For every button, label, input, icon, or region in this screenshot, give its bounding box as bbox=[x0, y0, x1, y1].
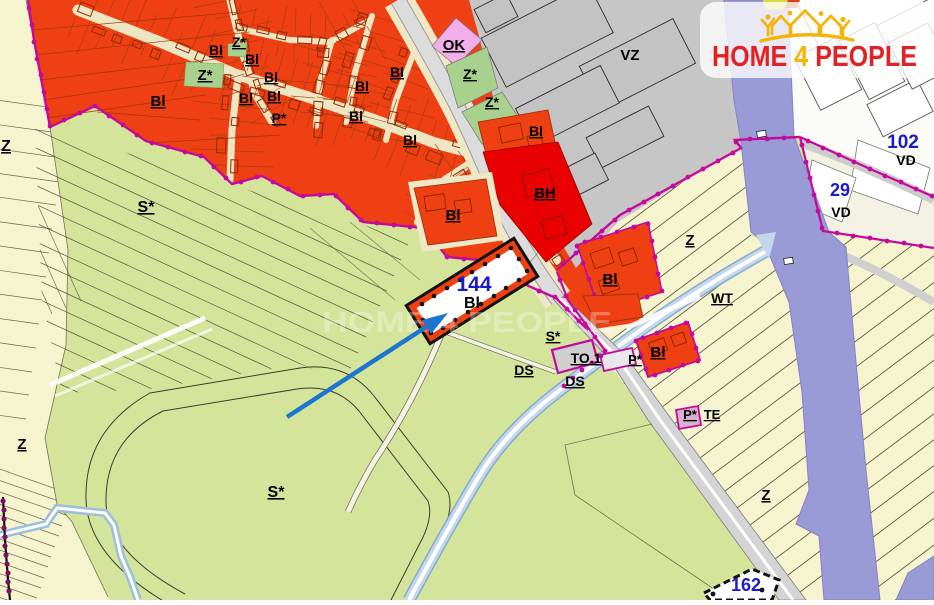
svg-text:Bl: Bl bbox=[355, 78, 369, 94]
svg-text:HOME 4 PEOPLE: HOME 4 PEOPLE bbox=[712, 41, 917, 73]
svg-text:Bl: Bl bbox=[349, 108, 363, 124]
svg-text:Bl: Bl bbox=[267, 88, 281, 104]
svg-text:Bl: Bl bbox=[151, 93, 166, 110]
svg-text:29: 29 bbox=[830, 180, 850, 200]
svg-text:DS: DS bbox=[565, 373, 584, 389]
svg-text:TE: TE bbox=[704, 407, 721, 422]
svg-text:P*: P* bbox=[272, 110, 287, 126]
svg-text:WT: WT bbox=[711, 290, 733, 306]
svg-text:162: 162 bbox=[731, 575, 761, 595]
svg-text:Bl: Bl bbox=[239, 90, 253, 106]
svg-text:Bl: Bl bbox=[529, 123, 543, 139]
svg-text:VD: VD bbox=[831, 204, 850, 220]
svg-text:Z: Z bbox=[685, 232, 694, 249]
svg-text:Bl: Bl bbox=[209, 42, 223, 58]
svg-text:144: 144 bbox=[456, 273, 491, 296]
svg-text:P*: P* bbox=[628, 352, 643, 367]
svg-text:BH: BH bbox=[534, 185, 556, 202]
svg-text:Bl: Bl bbox=[651, 344, 666, 361]
svg-text:Bl: Bl bbox=[446, 207, 461, 224]
svg-text:Bl: Bl bbox=[245, 51, 259, 67]
svg-text:Z*: Z* bbox=[232, 34, 247, 50]
svg-text:DS: DS bbox=[514, 362, 533, 378]
svg-text:102: 102 bbox=[887, 132, 919, 153]
svg-text:VZ: VZ bbox=[620, 47, 639, 64]
svg-text:OK: OK bbox=[443, 37, 466, 54]
svg-text:Bl: Bl bbox=[390, 64, 404, 80]
svg-text:Bl: Bl bbox=[403, 132, 417, 148]
svg-text:S*: S* bbox=[138, 199, 156, 216]
svg-text:TO.1: TO.1 bbox=[571, 350, 602, 366]
svg-text:VD: VD bbox=[896, 152, 915, 168]
svg-text:Z: Z bbox=[1, 138, 11, 155]
svg-text:Bl: Bl bbox=[603, 271, 618, 288]
svg-text:Bl: Bl bbox=[264, 69, 278, 85]
svg-text:P*: P* bbox=[683, 407, 698, 422]
svg-text:Z*: Z* bbox=[198, 67, 213, 84]
svg-text:S*: S* bbox=[268, 484, 286, 501]
svg-text:Z*: Z* bbox=[485, 94, 500, 110]
svg-text:HOME 4 PEOPLE: HOME 4 PEOPLE bbox=[322, 307, 612, 339]
svg-text:Z: Z bbox=[17, 436, 26, 453]
svg-text:Z*: Z* bbox=[463, 66, 478, 82]
svg-text:Z: Z bbox=[761, 487, 770, 504]
